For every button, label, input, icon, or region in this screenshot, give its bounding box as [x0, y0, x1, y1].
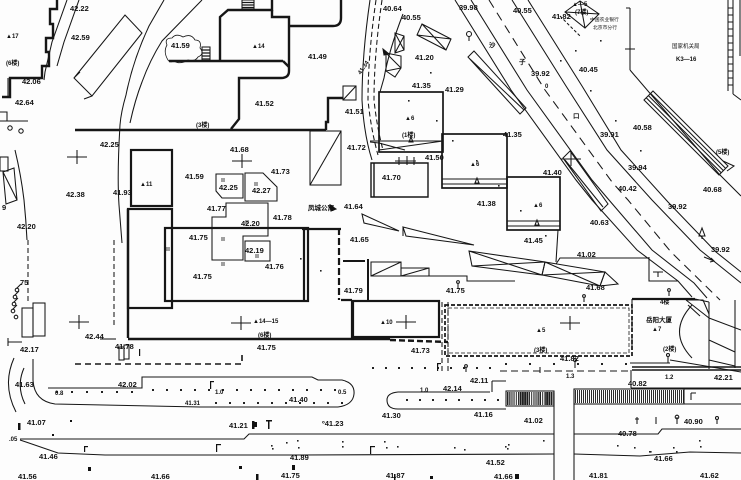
- svg-text:42.14: 42.14: [443, 384, 463, 393]
- svg-text:41.75: 41.75: [446, 286, 465, 295]
- svg-text:▲14—15: ▲14—15: [253, 319, 279, 325]
- svg-text:(6楼): (6楼): [258, 331, 271, 339]
- svg-text:41.75: 41.75: [281, 471, 300, 480]
- svg-text:39.92: 39.92: [531, 69, 550, 78]
- svg-text:(3楼): (3楼): [534, 346, 547, 354]
- svg-text:▲17: ▲17: [6, 34, 19, 40]
- svg-text:▲11: ▲11: [140, 182, 153, 188]
- svg-text:41.30: 41.30: [382, 411, 401, 420]
- svg-text:40.82: 40.82: [628, 379, 647, 388]
- svg-text:42.21: 42.21: [714, 373, 733, 382]
- svg-text:42.38: 42.38: [66, 190, 85, 199]
- svg-text:(6楼): (6楼): [6, 59, 19, 67]
- svg-text:42.44: 42.44: [85, 332, 105, 341]
- svg-text:K3—16: K3—16: [676, 57, 697, 63]
- svg-text:41.35: 41.35: [503, 130, 522, 139]
- svg-text:42.59: 42.59: [71, 33, 90, 42]
- svg-text:(7楼): (7楼): [575, 8, 588, 16]
- svg-text:42.27: 42.27: [252, 186, 271, 195]
- svg-text:42.11: 42.11: [470, 376, 488, 385]
- svg-text:º41.23: º41.23: [322, 419, 344, 428]
- svg-text:口: 口: [573, 112, 580, 120]
- svg-text:41.40: 41.40: [543, 168, 562, 177]
- svg-text:42.20: 42.20: [17, 222, 36, 231]
- svg-text:41.76: 41.76: [265, 262, 284, 271]
- svg-text:41.52: 41.52: [255, 99, 274, 108]
- svg-text:39.92: 39.92: [711, 245, 730, 254]
- svg-text:41.78: 41.78: [273, 213, 292, 222]
- svg-text:子: 子: [519, 58, 526, 66]
- svg-text:中国农业银行: 中国农业银行: [590, 16, 619, 23]
- svg-text:41.75: 41.75: [257, 343, 276, 352]
- svg-text:沙: 沙: [489, 41, 496, 49]
- svg-text:41.64: 41.64: [344, 202, 364, 211]
- svg-text:41.79: 41.79: [344, 286, 363, 295]
- svg-text:40.90: 40.90: [684, 417, 703, 426]
- svg-text:40.42: 40.42: [618, 184, 637, 193]
- svg-text:41.38: 41.38: [477, 199, 496, 208]
- svg-text:41.66: 41.66: [654, 454, 673, 463]
- svg-text:41.51: 41.51: [345, 107, 364, 116]
- svg-text:40.45: 40.45: [579, 65, 598, 74]
- svg-text:41.21: 41.21: [229, 421, 248, 430]
- svg-text:40.64: 40.64: [383, 4, 403, 13]
- svg-text:41.20: 41.20: [415, 53, 434, 62]
- svg-text:41.89: 41.89: [290, 453, 309, 462]
- svg-text:41.62: 41.62: [700, 471, 719, 480]
- svg-text:41.81: 41.81: [589, 471, 608, 480]
- svg-text:75: 75: [20, 278, 28, 287]
- svg-text:41.16: 41.16: [474, 410, 493, 419]
- svg-text:41.35: 41.35: [412, 81, 431, 90]
- svg-text:40.68: 40.68: [703, 185, 722, 194]
- svg-text:42.20: 42.20: [241, 219, 260, 228]
- svg-text:41.31: 41.31: [185, 401, 201, 407]
- svg-text:42.22: 42.22: [70, 4, 89, 13]
- svg-text:▲6: ▲6: [405, 116, 415, 122]
- svg-text:▲7: ▲7: [652, 327, 662, 333]
- svg-text:41.77: 41.77: [207, 204, 226, 213]
- svg-text:41.59: 41.59: [185, 172, 204, 181]
- svg-text:▲14: ▲14: [252, 44, 265, 50]
- svg-text:(5楼): (5楼): [716, 148, 729, 156]
- svg-text:39.91: 39.91: [600, 130, 619, 139]
- svg-text:41.07: 41.07: [27, 418, 46, 427]
- svg-text:40.63: 40.63: [590, 218, 609, 227]
- svg-text:41.56: 41.56: [18, 472, 37, 480]
- svg-text:1.2: 1.2: [665, 375, 674, 381]
- svg-text:▲10: ▲10: [380, 320, 393, 326]
- svg-text:国家机关局: 国家机关局: [672, 42, 700, 50]
- svg-text:41.65: 41.65: [350, 235, 369, 244]
- svg-text:▲5: ▲5: [536, 328, 546, 334]
- svg-text:41.63: 41.63: [15, 380, 34, 389]
- svg-text:▲6: ▲6: [533, 203, 543, 209]
- svg-text:41.66: 41.66: [151, 472, 170, 480]
- svg-text:0.5: 0.5: [338, 390, 347, 396]
- svg-text:42.17: 42.17: [20, 345, 39, 354]
- svg-text:40.55: 40.55: [513, 6, 532, 15]
- svg-text:41.68: 41.68: [586, 283, 605, 292]
- svg-text:39.92: 39.92: [668, 202, 687, 211]
- svg-text:42.25: 42.25: [100, 140, 119, 149]
- svg-text:41.49: 41.49: [308, 52, 327, 61]
- svg-text:41.66: 41.66: [494, 472, 513, 480]
- svg-text:▲—5: ▲—5: [572, 2, 588, 8]
- svg-text:42.19: 42.19: [245, 246, 264, 255]
- svg-text:41.40: 41.40: [289, 395, 308, 404]
- svg-text:41.93: 41.93: [113, 188, 132, 197]
- svg-text:北京市分行: 北京市分行: [593, 24, 617, 31]
- svg-text:40.55: 40.55: [402, 13, 421, 22]
- svg-text:41.75: 41.75: [193, 272, 212, 281]
- svg-text:41.73: 41.73: [271, 167, 290, 176]
- svg-text:42.02: 42.02: [118, 380, 137, 389]
- svg-text:1.0: 1.0: [215, 390, 224, 396]
- svg-text:41.68: 41.68: [230, 145, 249, 154]
- svg-text:41.75: 41.75: [189, 233, 208, 242]
- svg-text:41.46: 41.46: [39, 452, 58, 461]
- svg-text:39.98: 39.98: [459, 3, 478, 12]
- svg-text:41.59: 41.59: [171, 41, 190, 50]
- svg-text:41.45: 41.45: [524, 236, 543, 245]
- svg-text:9: 9: [2, 203, 6, 212]
- svg-text:41.72: 41.72: [347, 143, 366, 152]
- svg-text:40.58: 40.58: [633, 123, 652, 132]
- svg-text:(1楼): (1楼): [402, 131, 415, 139]
- svg-text:42.06: 42.06: [22, 77, 41, 86]
- svg-text:41.29: 41.29: [445, 85, 464, 94]
- svg-text:41.78: 41.78: [115, 342, 134, 351]
- svg-text:41.52: 41.52: [486, 458, 505, 467]
- svg-text:41.73: 41.73: [411, 346, 430, 355]
- svg-text:(3楼): (3楼): [196, 121, 209, 129]
- svg-text:1.3: 1.3: [566, 374, 575, 380]
- svg-text:凤城公寓: 凤城公寓: [308, 203, 335, 212]
- svg-text:41.70: 41.70: [382, 173, 401, 182]
- svg-text:41.02: 41.02: [524, 416, 543, 425]
- svg-text:41.02: 41.02: [577, 250, 596, 259]
- svg-text:▲6: ▲6: [470, 162, 480, 168]
- svg-text:40.78: 40.78: [618, 429, 637, 438]
- svg-text:(2楼): (2楼): [663, 345, 676, 353]
- svg-text:41.82: 41.82: [552, 12, 571, 21]
- svg-text:岳阳大厦: 岳阳大厦: [646, 315, 673, 324]
- svg-text:39.94: 39.94: [628, 163, 648, 172]
- svg-text:.05: .05: [9, 437, 18, 443]
- svg-text:0: 0: [545, 84, 549, 90]
- svg-text:41.87: 41.87: [386, 471, 405, 480]
- svg-text:4楼: 4楼: [660, 298, 669, 306]
- svg-text:41.50: 41.50: [425, 153, 444, 162]
- svg-text:42.64: 42.64: [15, 98, 35, 107]
- svg-text:1.0: 1.0: [420, 388, 429, 394]
- svg-text:42.25: 42.25: [219, 183, 238, 192]
- svg-text:0.8: 0.8: [55, 391, 64, 397]
- svg-text:41.82: 41.82: [560, 354, 579, 363]
